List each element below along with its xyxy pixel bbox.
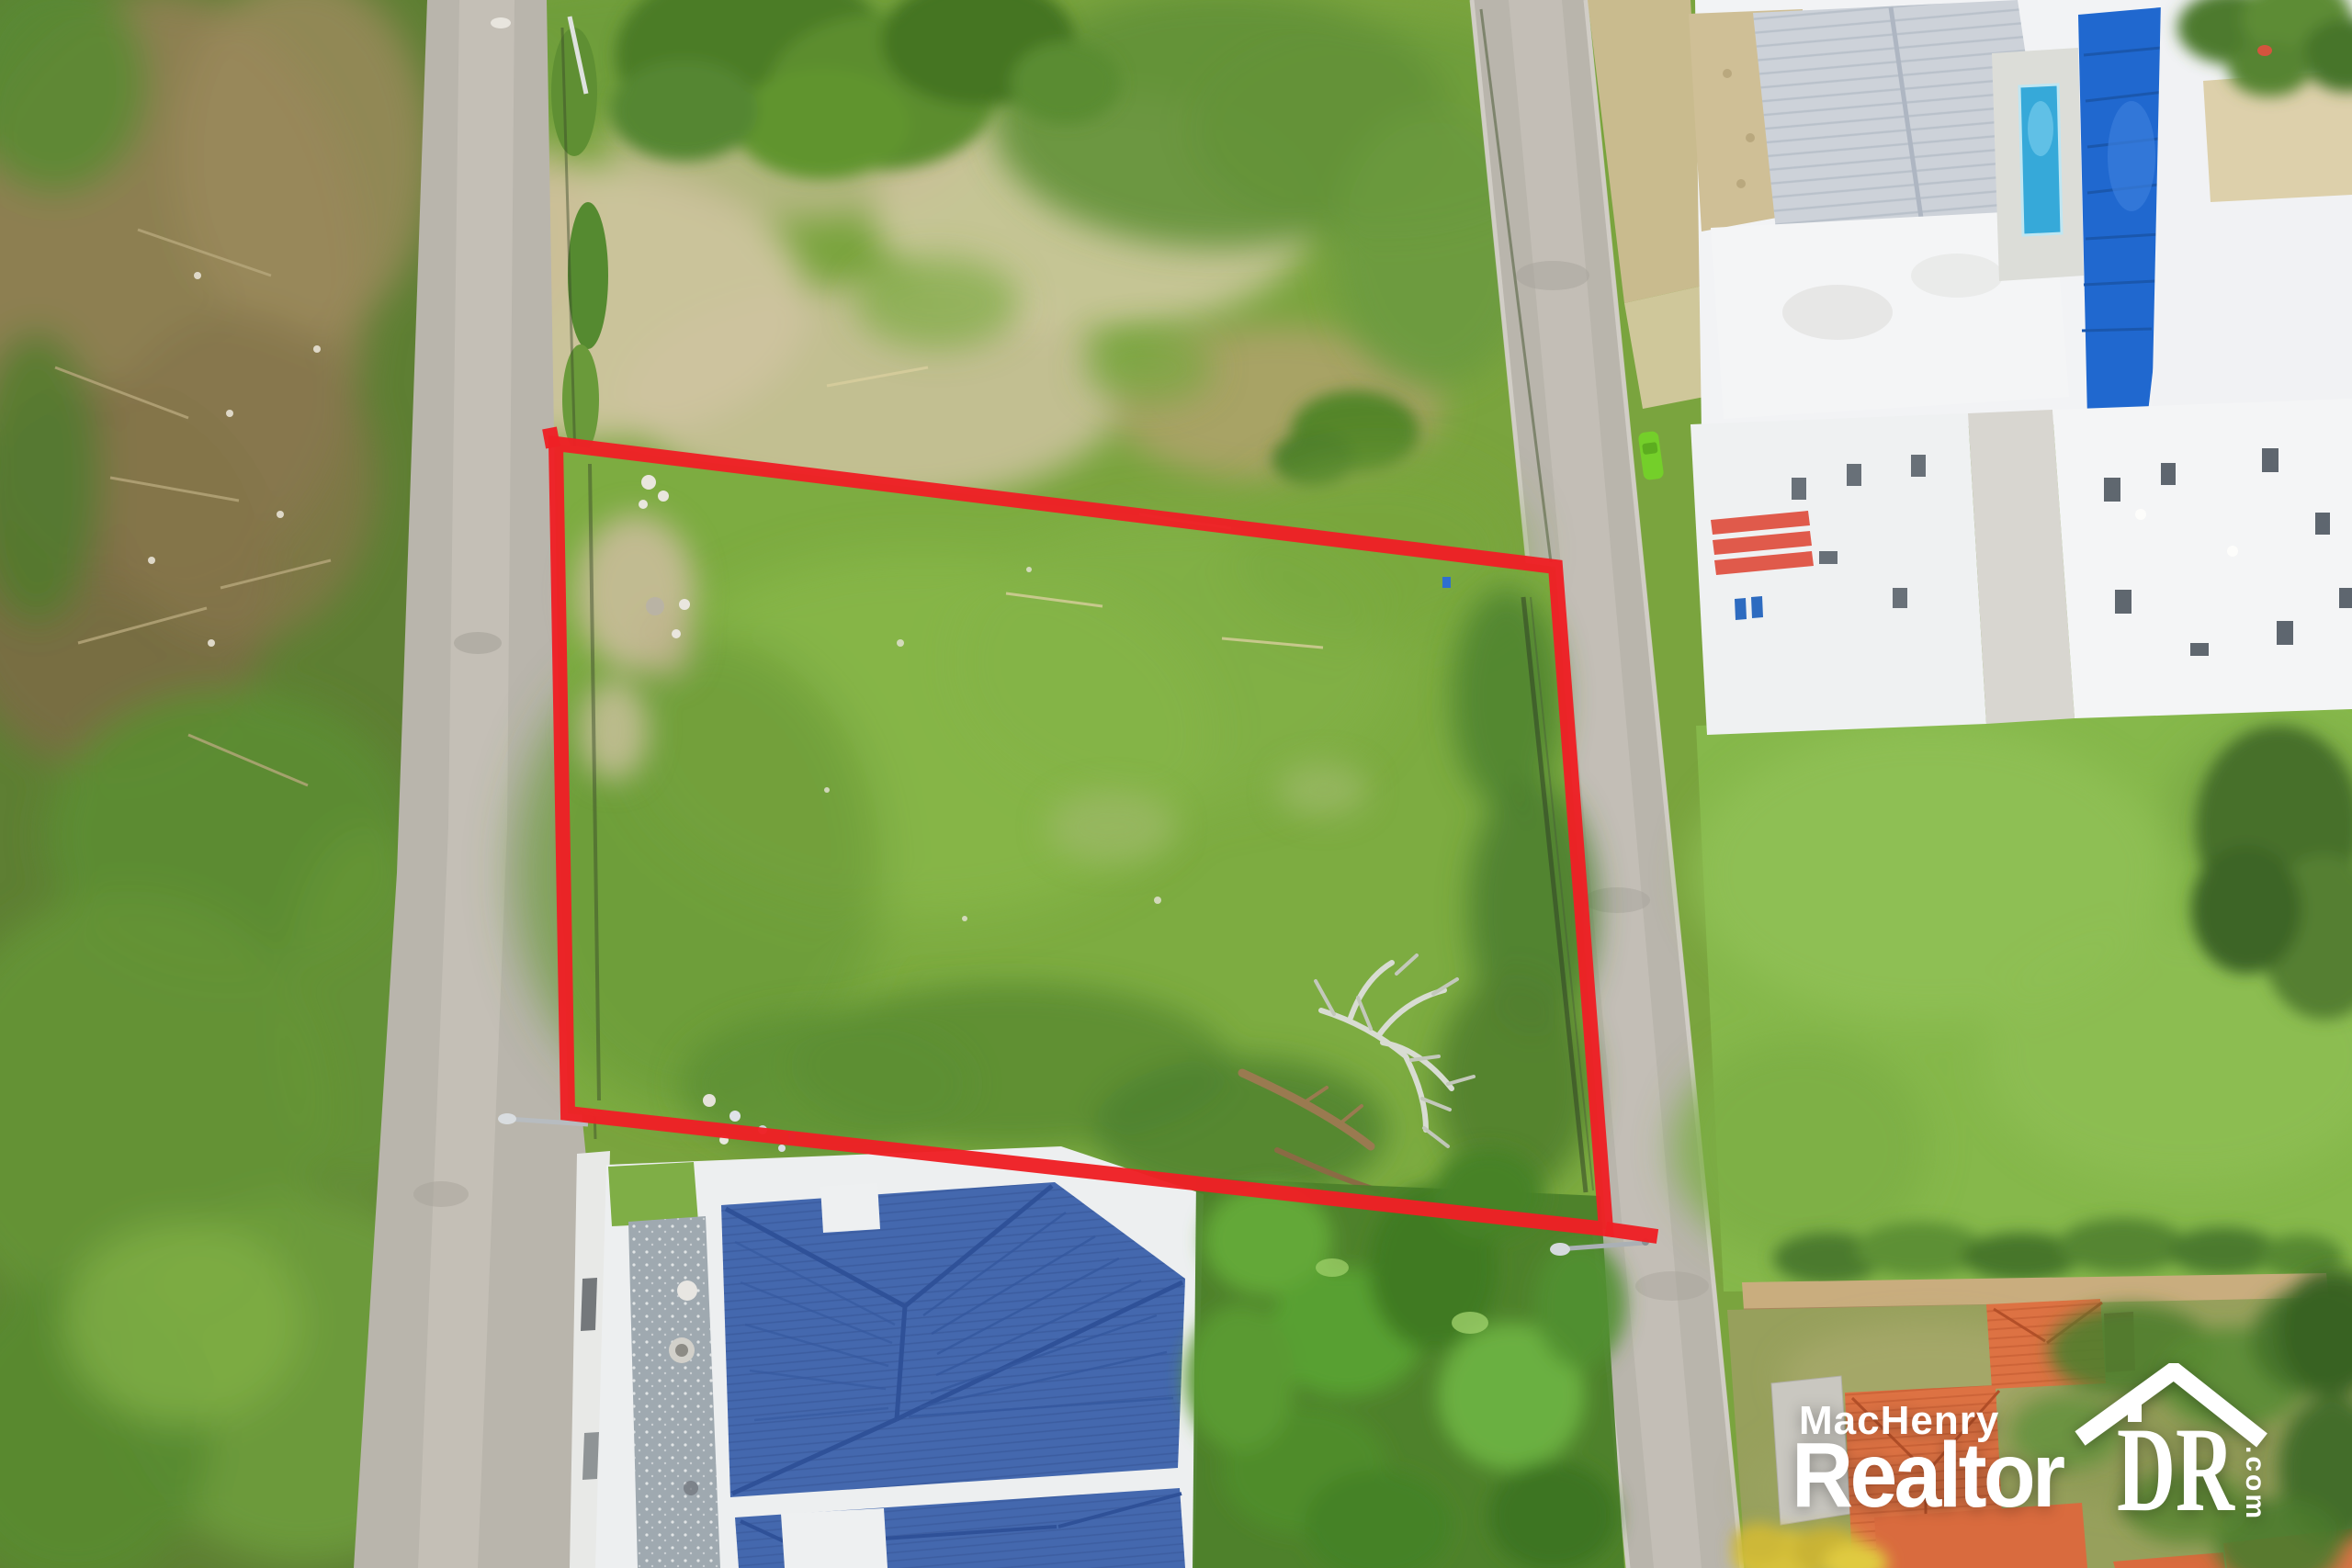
lamp-head [498,1113,516,1124]
swimming-pool [2019,85,2062,235]
watermark-tld: .com [2239,1446,2270,1521]
plot-outline-notch [549,428,553,447]
blue-roof-house [570,1146,1204,1568]
aerial-photo: MacHenry Realtor DR .com [0,0,2352,1568]
blue-barrel [1442,577,1451,588]
coral-awnings [1711,511,1814,575]
right-lawn [1672,707,2352,1292]
roof-notch [820,1183,880,1233]
main-blue-roof [721,1182,1185,1497]
white-building-sw [1690,413,1986,735]
lamp-head [1550,1243,1570,1256]
watermark-brand-suffix: DR [2117,1402,2235,1530]
realtor-watermark: MacHenry Realtor DR .com [1792,1374,2311,1568]
watermark-brand: Realtor [1792,1429,2062,1521]
top-right-buildings [1637,0,2352,735]
white-building-se [2052,399,2352,718]
speckled-terrace [628,1216,720,1568]
scene [0,0,2352,1568]
plot-outline-overshoot [1606,1229,1657,1236]
house-lawn-corner [608,1162,698,1226]
paper-litter [491,17,511,28]
